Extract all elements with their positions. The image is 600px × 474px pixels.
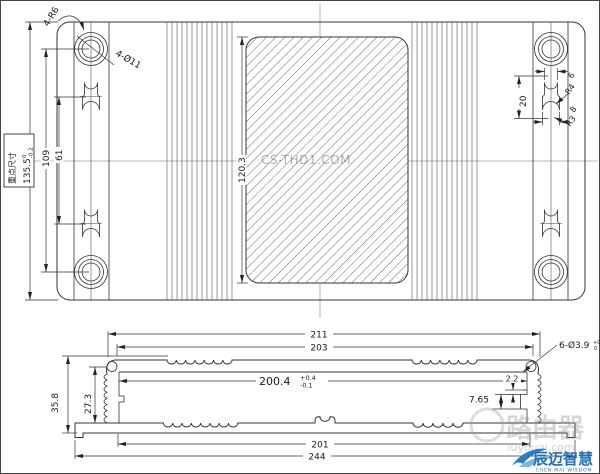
- key-dim-tol-upper: 0: [22, 154, 28, 158]
- dim-hatch-height-label: 120.3: [238, 157, 248, 183]
- dim-base-inner-label: 201: [311, 441, 328, 451]
- center-watermark: CS-THD1.COM: [261, 153, 351, 167]
- logo-name-en: CHEN MAI WISDOM: [536, 468, 592, 474]
- dim-hole-span-label: 109: [42, 150, 52, 167]
- watermark-brand-cn: 路由器: [506, 413, 585, 444]
- cad-drawing-page: 重点尺寸 135.5 0 -0.2 4-R6 4-Ø11 109 61 120.…: [0, 0, 600, 474]
- dim-cavity-height-label: 27.3: [84, 394, 94, 414]
- dim-step-label: 7.65: [469, 396, 489, 406]
- dim-slot-span-label: 61: [55, 150, 65, 161]
- dim-base-width-label: 244: [308, 453, 325, 463]
- key-dim-box: 重点尺寸 135.5 0 -0.2: [4, 134, 35, 187]
- dim-cover-width-label: 203: [310, 344, 327, 354]
- key-dim-tol-lower: -0.2: [29, 147, 35, 158]
- engineering-drawing: 重点尺寸 135.5 0 -0.2 4-R6 4-Ø11 109 61 120.…: [0, 0, 600, 474]
- key-dim-caption: 重点尺寸: [7, 152, 17, 184]
- dim-inner-width-label: 200.4: [259, 375, 291, 388]
- slot-height-label: 20: [519, 95, 529, 107]
- screw-holes-tol-lower: 0: [594, 346, 597, 352]
- screw-holes-label: 6-Ø3.9: [559, 340, 590, 351]
- dim-overall-width-label: 211: [310, 331, 327, 341]
- dim-total-height-label: 35.8: [51, 393, 61, 413]
- dim-lip-label: 2.2: [506, 375, 519, 384]
- key-dim-value: 135.5: [23, 158, 33, 184]
- logo-name-cn: 辰迈智慧: [533, 450, 593, 468]
- dim-inner-width-tol-lower: -0.1: [300, 382, 313, 390]
